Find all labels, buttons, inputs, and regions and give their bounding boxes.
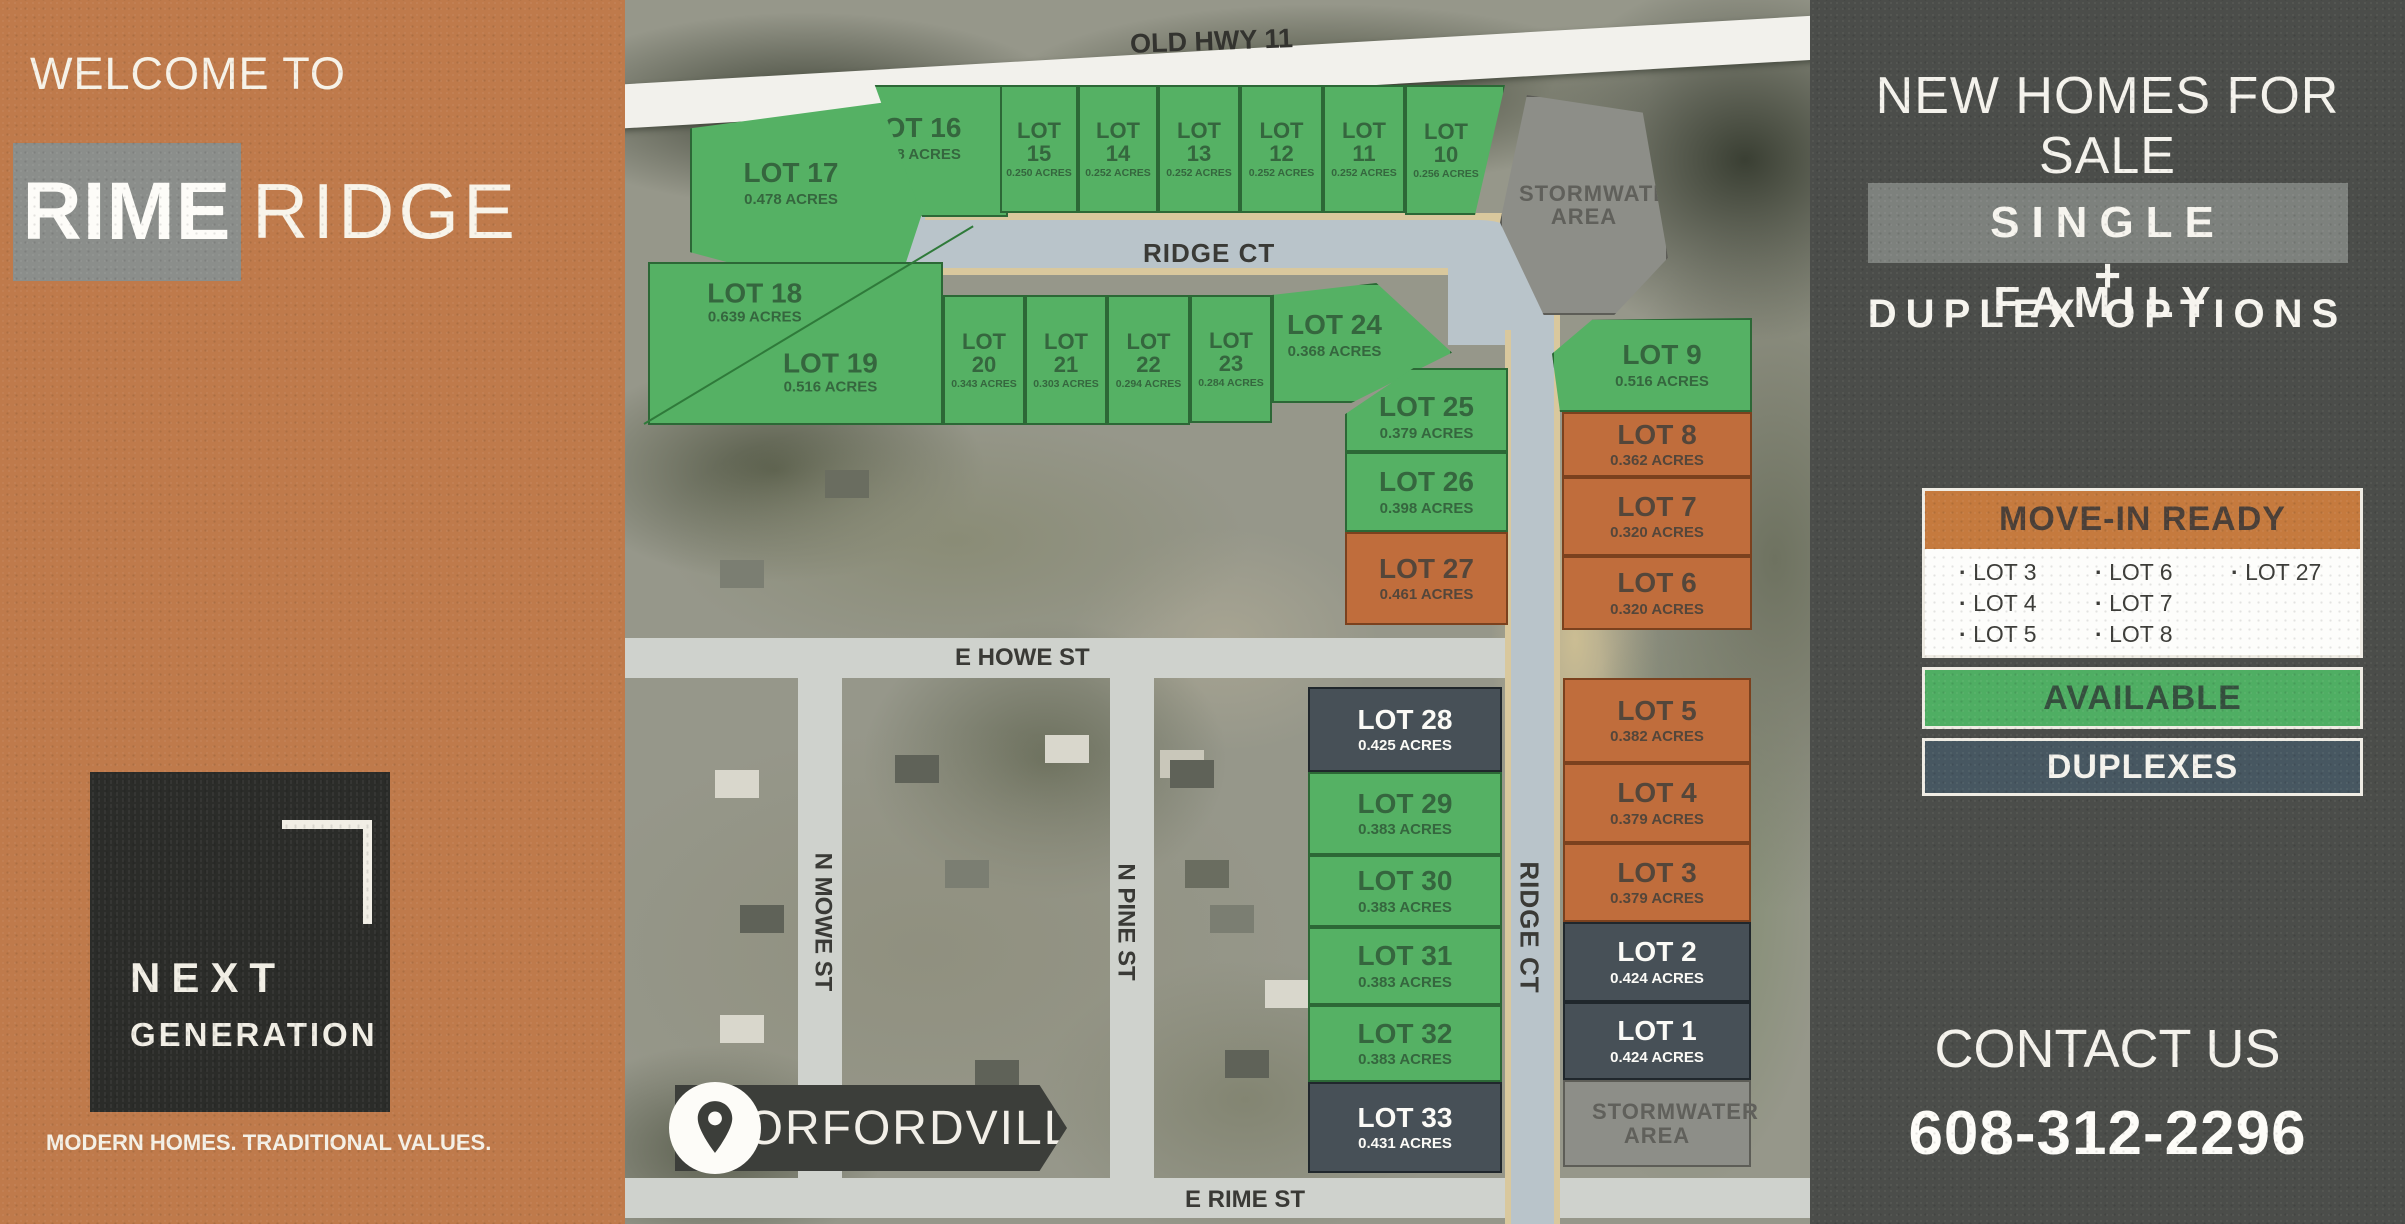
legend-move-in-ready-header: MOVE-IN READY bbox=[1925, 491, 2360, 549]
lot-30: LOT 30 0.383 ACRES bbox=[1308, 855, 1502, 927]
corner-bracket-icon bbox=[282, 820, 372, 924]
lot-8: LOT 8 0.362 ACRES bbox=[1562, 412, 1752, 477]
welcome-heading: WELCOME TO bbox=[30, 48, 346, 100]
legend-lot-item: LOT 27 bbox=[2231, 557, 2321, 588]
contact-us-heading: CONTACT US bbox=[1810, 1018, 2405, 1080]
street-label-e-howe: E HOWE ST bbox=[955, 644, 1090, 672]
left-panel: WELCOME TO RIME RIDGE NEXT GENERATION MO… bbox=[0, 0, 625, 1224]
street-label-ridge-ct-side: RIDGE CT bbox=[1514, 861, 1545, 993]
legend-lot-item: LOT 6 bbox=[2095, 557, 2173, 588]
lot-20: LOT 20 0.343 ACRES bbox=[943, 295, 1025, 425]
lot-19: LOT 19 0.516 ACRES bbox=[783, 348, 878, 395]
logo-text-next: NEXT bbox=[130, 954, 286, 1002]
ridge-ct-road-side bbox=[1505, 330, 1560, 1224]
lot-3: LOT 3 0.379 ACRES bbox=[1563, 843, 1751, 922]
lot-14: LOT 14 0.252 ACRES bbox=[1078, 85, 1158, 213]
lot-2: LOT 2 0.424 ACRES bbox=[1563, 922, 1751, 1002]
lot-10: LOT 10 0.256 ACRES bbox=[1405, 85, 1505, 215]
street-label-n-pine: N PINE ST bbox=[1112, 863, 1140, 980]
legend-column-2: LOT 6 LOT 7 LOT 8 bbox=[2095, 557, 2173, 650]
legend-lot-item: LOT 7 bbox=[2095, 588, 2173, 619]
brand-name-secondary: RIDGE bbox=[252, 143, 519, 281]
lot-23: LOT 23 0.284 ACRES bbox=[1190, 295, 1272, 423]
street-label-ridge-ct-top: RIDGE CT bbox=[1143, 238, 1275, 269]
contact-phone-number: 608-312-2296 bbox=[1810, 1098, 2405, 1169]
lot-31: LOT 31 0.383 ACRES bbox=[1308, 927, 1502, 1005]
right-panel: NEW HOMES FOR SALE SINGLE FAMILY + DUPLE… bbox=[1810, 0, 2405, 1224]
builder-logo: NEXT GENERATION bbox=[90, 772, 390, 1112]
legend-lot-item: LOT 3 bbox=[1959, 557, 2037, 588]
legend-lot-item: LOT 8 bbox=[2095, 619, 2173, 650]
lot-18-19-parcel: LOT 18 0.639 ACRES LOT 19 0.516 ACRES bbox=[648, 262, 943, 425]
lot-5: LOT 5 0.382 ACRES bbox=[1563, 678, 1751, 763]
brand-highlight-box: RIME bbox=[13, 143, 241, 281]
aerial-houses bbox=[625, 0, 669, 28]
lot-18: LOT 18 0.639 ACRES bbox=[707, 278, 802, 325]
lot-15: LOT 15 0.250 ACRES bbox=[1000, 85, 1078, 213]
legend-duplexes: DUPLEXES bbox=[1922, 738, 2363, 796]
aerial-plat-map: OLD HWY 11 RIDGE CT RIDGE CT E HOWE ST N… bbox=[625, 0, 1810, 1224]
lot-29: LOT 29 0.383 ACRES bbox=[1308, 772, 1502, 855]
brand-name-primary: RIME bbox=[23, 165, 232, 259]
lot-7: LOT 7 0.320 ACRES bbox=[1562, 477, 1752, 556]
location-pin-icon bbox=[669, 1082, 761, 1174]
legend-move-in-ready: MOVE-IN READY LOT 3 LOT 4 LOT 5 LOT 6 LO… bbox=[1922, 488, 2363, 658]
lot-21: LOT 21 0.303 ACRES bbox=[1025, 295, 1107, 425]
lot-9: LOT 9 0.516 ACRES bbox=[1552, 318, 1752, 412]
lot-26: LOT 26 0.398 ACRES bbox=[1345, 452, 1508, 532]
lot-32: LOT 32 0.383 ACRES bbox=[1308, 1005, 1502, 1082]
sale-headline: NEW HOMES FOR SALE bbox=[1810, 66, 2405, 186]
street-label-e-rime: E RIME ST bbox=[1185, 1186, 1305, 1214]
lot-4: LOT 4 0.379 ACRES bbox=[1563, 763, 1751, 843]
legend-column-1: LOT 3 LOT 4 LOT 5 bbox=[1959, 557, 2037, 650]
legend-lot-item: LOT 5 bbox=[1959, 619, 2037, 650]
lot-11: LOT 11 0.252 ACRES bbox=[1323, 85, 1405, 213]
street-label-old-hwy-11: OLD HWY 11 bbox=[1130, 23, 1294, 60]
plus-sign: + bbox=[1810, 248, 2405, 302]
lot-status-legend: MOVE-IN READY LOT 3 LOT 4 LOT 5 LOT 6 LO… bbox=[1922, 488, 2363, 796]
lot-27: LOT 27 0.461 ACRES bbox=[1345, 532, 1508, 625]
lot-12: LOT 12 0.252 ACRES bbox=[1240, 85, 1323, 213]
legend-column-3: LOT 27 bbox=[2231, 557, 2321, 588]
town-badge-label: ORFORDVILLE bbox=[746, 1101, 1107, 1156]
legend-lot-item: LOT 4 bbox=[1959, 588, 2037, 619]
legend-move-in-ready-lots: LOT 3 LOT 4 LOT 5 LOT 6 LOT 7 LOT 8 LOT … bbox=[1925, 549, 2360, 655]
street-label-n-mowe: N MOWE ST bbox=[808, 853, 836, 992]
logo-text-generation: GENERATION bbox=[130, 1016, 378, 1054]
lot-6: LOT 6 0.320 ACRES bbox=[1562, 556, 1752, 630]
stormwater-area-bottom: STORMWATER AREA bbox=[1563, 1080, 1751, 1167]
legend-available: AVAILABLE bbox=[1922, 667, 2363, 729]
lot-33: LOT 33 0.431 ACRES bbox=[1308, 1082, 1502, 1173]
lot-1: LOT 1 0.424 ACRES bbox=[1563, 1002, 1751, 1080]
lot-28: LOT 28 0.425 ACRES bbox=[1308, 687, 1502, 772]
rime-ridge-flyer: OLD HWY 11 RIDGE CT RIDGE CT E HOWE ST N… bbox=[0, 0, 2405, 1224]
lot-22: LOT 22 0.294 ACRES bbox=[1107, 295, 1190, 425]
lot-13: LOT 13 0.252 ACRES bbox=[1158, 85, 1240, 213]
tagline: MODERN HOMES. TRADITIONAL VALUES. bbox=[46, 1130, 491, 1156]
